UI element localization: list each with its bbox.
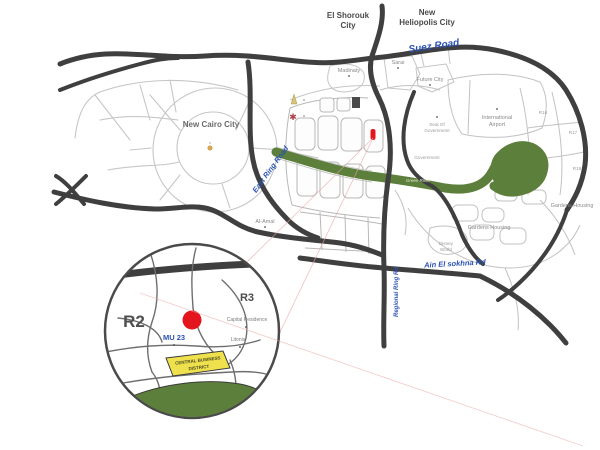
label-al-amal: Al-Amal xyxy=(255,219,274,225)
downtown-block-icon xyxy=(352,97,360,108)
label-el-shorouk-2: City xyxy=(340,21,356,30)
dot-icon xyxy=(348,75,350,77)
dot-icon xyxy=(429,84,431,86)
label-seat-of-government-2: Government xyxy=(424,128,450,133)
road-newcairo-south xyxy=(54,192,382,255)
label-parcel-r16: R16 xyxy=(539,110,548,115)
dot-icon xyxy=(239,346,241,348)
label-mu23: MU 23 xyxy=(163,333,185,342)
road-cross-west xyxy=(56,176,86,204)
label-madinaty: Madinaty xyxy=(338,68,361,74)
map-svg: ✱ El Shorouk City New Heliopolis City Ne… xyxy=(0,0,600,450)
label-district-r3: R3 xyxy=(240,292,254,304)
label-parcel-r17: R17 xyxy=(569,130,578,135)
label-gardens-housing-1: Gardens Housing xyxy=(551,203,594,209)
dot-icon xyxy=(209,142,210,143)
label-suez-road: Suez Road xyxy=(408,37,461,55)
label-intl-airport-1: International xyxy=(482,115,512,121)
road-north-vertical xyxy=(370,6,382,98)
rosette-landmark-icon: ✱ xyxy=(289,112,297,122)
label-new-cairo-city: New Cairo City xyxy=(183,120,240,129)
dot-icon xyxy=(264,226,266,228)
dot-icon xyxy=(496,108,498,110)
dot-icon xyxy=(436,116,438,118)
location-map: ✱ El Shorouk City New Heliopolis City Ne… xyxy=(0,0,600,450)
label-future-city: Future City xyxy=(417,77,444,83)
label-disney-world-1: Disney xyxy=(439,241,454,246)
dot-icon xyxy=(397,67,399,69)
label-parcel-r18: R18 xyxy=(573,166,582,171)
label-new-heliopolis-1: New xyxy=(419,8,436,17)
label-gardens-housing-2: Gardens Housing xyxy=(468,225,511,231)
label-new-heliopolis-2: Heliopolis City xyxy=(399,18,455,27)
dot-icon xyxy=(303,115,305,117)
label-capital-residence: Capital Residence xyxy=(227,317,268,323)
road-branch-west xyxy=(60,58,178,90)
label-el-shorouk-1: El Shorouk xyxy=(327,11,370,20)
label-intl-airport-2: Airport xyxy=(489,122,506,128)
road-ain-sokhna xyxy=(300,258,566,343)
label-disney-world-2: World xyxy=(440,247,452,252)
label-district-r2: R2 xyxy=(123,312,145,331)
label-ain-sokhna-rd: Ain El sokhna Rd xyxy=(423,257,486,269)
label-government: Government xyxy=(414,155,440,160)
label-green-river: Green River xyxy=(406,178,431,183)
road-east-boundary xyxy=(498,210,567,300)
dot-icon xyxy=(173,344,175,346)
label-litonis: Litonis xyxy=(231,337,246,343)
town-landmark-icon xyxy=(208,146,212,150)
dot-icon xyxy=(303,99,305,101)
label-sarai: Sarai xyxy=(392,60,405,66)
dot-icon xyxy=(245,326,247,328)
label-seat-of-government-1: Seat Of xyxy=(429,122,445,127)
label-regional-ring-rd: Regional Ring Rd xyxy=(394,267,400,317)
